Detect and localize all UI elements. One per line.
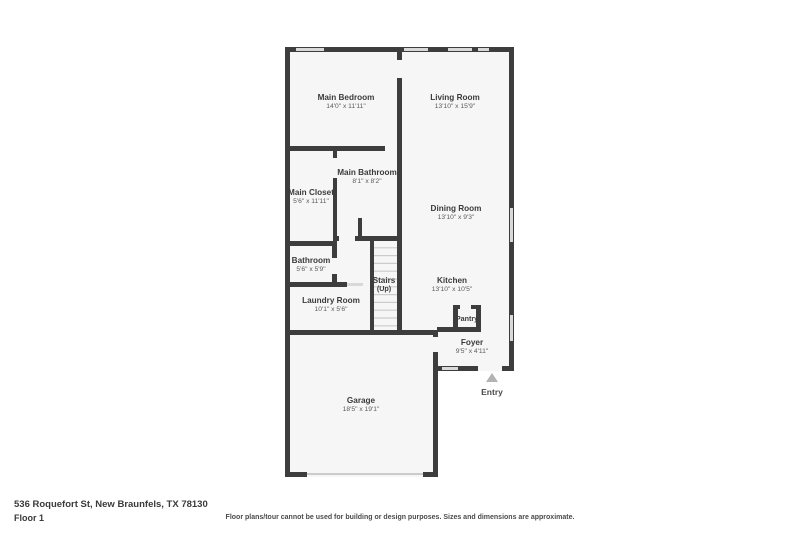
room-label-laundry-room: Laundry Room [302,296,360,305]
door-opening-icon [347,283,363,286]
floor-plan: Entry Main Bedroom14'0" x 11'11"Living R… [0,0,800,533]
room-dim-dining-room: 13'10" x 9'3" [438,214,475,221]
entry-arrow-icon [486,373,498,382]
room-label-main-closet: Main Closet [288,188,334,197]
room-label-main-bedroom: Main Bedroom [318,93,375,102]
entry-label: Entry [481,387,503,397]
room-dim-stairs: (Up) [377,284,392,293]
garage-door-line [307,473,423,475]
window-icon [448,48,472,51]
room-dim-main-bedroom: 14'0" x 11'11" [326,103,366,110]
room-dim-foyer: 9'5" x 4'11" [456,348,489,355]
room-dim-bathroom: 5'6" x 5'9" [296,266,326,273]
window-icon [478,48,489,51]
floor-plan-page: Entry Main Bedroom14'0" x 11'11"Living R… [0,0,800,533]
disclaimer-text: Floor plans/tour cannot be used for buil… [0,514,800,521]
room-label-dining-room: Dining Room [431,204,482,213]
room-label-pantry: Pantry [456,314,478,323]
room-label-foyer: Foyer [461,338,484,347]
room-dim-main-bathroom: 8'1" x 8'2" [352,178,382,185]
window-icon [296,48,324,51]
room-label-main-bathroom: Main Bathroom [337,168,397,177]
window-icon [510,208,513,242]
room-label-living-room: Living Room [430,93,480,102]
room-dim-living-room: 13'10" x 15'9" [435,103,476,110]
room-label-garage: Garage [347,396,376,405]
room-dim-laundry-room: 10'1" x 5'6" [315,306,349,313]
room-dim-main-closet: 5'6" x 11'11" [293,198,329,205]
window-icon [442,367,458,370]
room-dim-garage: 18'5" x 19'1" [343,406,380,413]
room-dim-kitchen: 13'10" x 10'5" [432,286,473,293]
window-icon [510,315,513,341]
address-text: 536 Roquefort St, New Braunfels, TX 7813… [14,499,208,510]
room-label-bathroom: Bathroom [292,256,331,265]
window-icon [404,48,428,51]
room-label-kitchen: Kitchen [437,276,467,285]
